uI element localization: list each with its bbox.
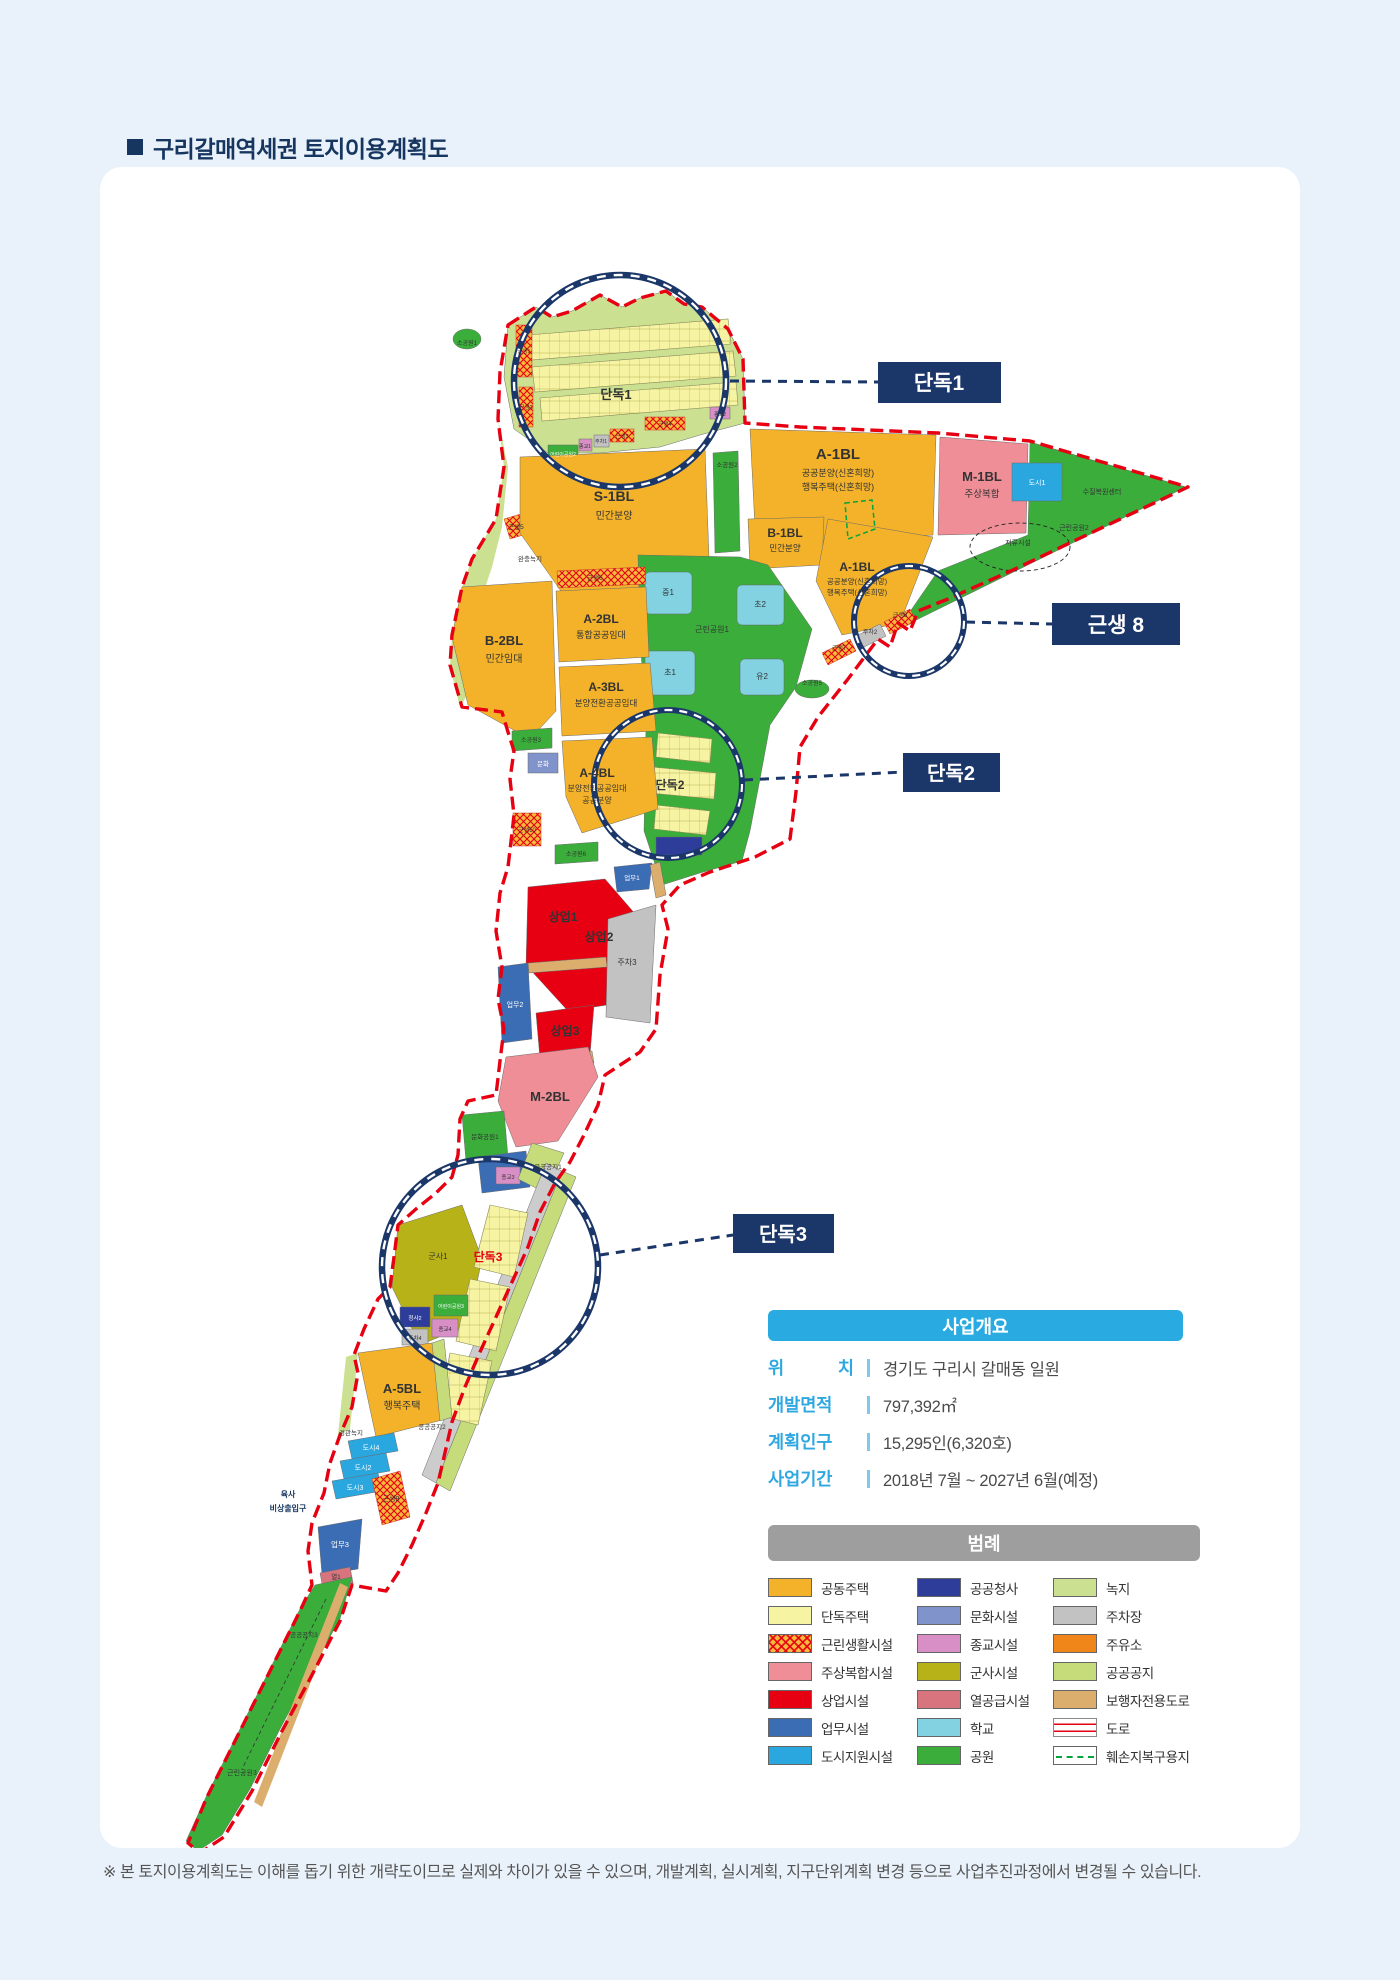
overview-row-label: 계획인구 <box>768 1429 854 1454</box>
overview-row: 위 치 경기도 구리시 갈매동 일원 <box>768 1355 1183 1380</box>
map-label: 분양전환공공임대 <box>568 783 627 793</box>
legend-swatch-solid <box>1053 1662 1097 1681</box>
map-label: S-1BL <box>594 488 635 504</box>
map-label: 업무1 <box>624 874 640 882</box>
map-label: 근린공원2 <box>1059 523 1089 532</box>
map-label: 업무2 <box>507 1001 524 1009</box>
legend-label: 공공공지 <box>1106 1662 1154 1682</box>
title-bullet-icon <box>127 139 143 155</box>
map-label: 저류시설 <box>1005 538 1031 547</box>
legend-item: 보행자전용도로 <box>1053 1690 1200 1709</box>
map-label: 상업2 <box>585 929 614 944</box>
overview-row-value: 15,295인(6,320호) <box>883 1430 1012 1454</box>
map-label: B-1BL <box>767 526 802 540</box>
overview-row: 개발면적 797,392㎡ <box>768 1392 1183 1417</box>
map-label: A-2BL <box>583 612 618 626</box>
map-label: 근생3 <box>615 432 628 440</box>
callout-line-dandok2 <box>744 772 903 780</box>
map-label: 근생7 <box>832 644 847 652</box>
legend-label: 도로 <box>1106 1718 1130 1738</box>
overview-row-value: 2018년 7월 ~ 2027년 6월(예정) <box>883 1467 1098 1491</box>
map-label: A-4BL <box>579 766 614 780</box>
legend-label: 주유소 <box>1106 1634 1142 1654</box>
map-label: 상업1 <box>549 909 578 924</box>
legend-item: 문화시설 <box>917 1606 1053 1625</box>
map-label: 비상출입구 <box>270 1503 307 1513</box>
legend-item: 공동주택 <box>768 1578 917 1597</box>
legend-label: 업무시설 <box>821 1718 869 1738</box>
legend-column: 공동주택단독주택근린생활시설주상복합시설상업시설업무시설도시지원시설 <box>768 1578 917 1765</box>
map-label: 공공공지2 <box>418 1422 446 1431</box>
callout-line-geunsaeng8 <box>966 622 1052 624</box>
legend-swatch-solid <box>917 1578 961 1597</box>
legend-item: 업무시설 <box>768 1718 917 1737</box>
map-label: 주차1 <box>595 438 607 445</box>
legend-swatch-solid <box>768 1578 812 1597</box>
legend-label: 주차장 <box>1106 1606 1142 1626</box>
map-label: 민간임대 <box>486 652 523 665</box>
map-label: 유2 <box>756 672 768 681</box>
overview-row-label: 개발면적 <box>768 1392 854 1417</box>
callout-label: 단독3 <box>759 1223 807 1246</box>
map-label: 주상복합 <box>965 489 1000 500</box>
legend-panel: 범례 공동주택단독주택근린생활시설주상복합시설상업시설업무시설도시지원시설공공청… <box>768 1525 1200 1765</box>
legend-item: 공원 <box>917 1746 1053 1765</box>
map-label: M-2BL <box>530 1089 570 1104</box>
legend-swatch-solid <box>917 1718 961 1737</box>
legend-swatch-restore <box>1053 1746 1097 1765</box>
map-label: 문화공원1 <box>471 1132 499 1141</box>
legend-label: 녹지 <box>1106 1578 1130 1598</box>
map-label: 소공원5 <box>802 679 823 687</box>
map-label: 청사2 <box>408 1314 421 1322</box>
legend-swatch-solid <box>768 1718 812 1737</box>
project-overview-panel: 사업개요 위 치 경기도 구리시 갈매동 일원 개발면적 797,392㎡ 계획… <box>768 1310 1183 1491</box>
legend-swatch-solid <box>917 1690 961 1709</box>
legend-swatch-solid <box>768 1690 812 1709</box>
map-label: 근생1 <box>517 347 530 355</box>
legend-swatch-solid <box>1053 1634 1097 1653</box>
map-label: 주차3 <box>617 958 637 967</box>
map-label: 초2 <box>754 600 766 609</box>
legend-label: 훼손지복구용지 <box>1106 1746 1189 1766</box>
legend-swatch-hatch <box>768 1634 812 1653</box>
map-label: 공공분양(신혼희망) <box>827 576 888 586</box>
overview-row-value: 경기도 구리시 갈매동 일원 <box>883 1356 1060 1380</box>
map-label: 완충녹지 <box>518 554 542 563</box>
map-label: 주차2 <box>863 628 878 636</box>
map-label: 분양전환공공임대 <box>575 698 638 708</box>
legend-item: 군사시설 <box>917 1662 1053 1681</box>
legend-swatch-solid <box>768 1662 812 1681</box>
map-label: 단독2 <box>656 777 685 792</box>
overview-header: 사업개요 <box>768 1310 1183 1341</box>
map-label: 소공원2 <box>716 460 738 469</box>
map-label: 공공공지3 <box>290 1630 318 1639</box>
overview-row: 사업기간 2018년 7월 ~ 2027년 6월(예정) <box>768 1466 1183 1491</box>
map-label: 공공분양(신혼희망) <box>802 467 874 478</box>
legend-swatch-solid <box>1053 1690 1097 1709</box>
legend-swatch-solid <box>768 1606 812 1625</box>
legend-item: 주유소 <box>1053 1634 1200 1653</box>
map-label: 단독3 <box>474 1249 503 1264</box>
legend-label: 상업시설 <box>821 1690 869 1710</box>
overview-row-divider <box>867 1470 870 1488</box>
legend-item: 종교시설 <box>917 1634 1053 1653</box>
legend-column: 녹지주차장주유소공공공지보행자전용도로도로훼손지복구용지 <box>1053 1578 1200 1765</box>
legend-grid: 공동주택단독주택근린생활시설주상복합시설상업시설업무시설도시지원시설공공청사문화… <box>768 1578 1200 1765</box>
map-label: 민간분양 <box>596 510 633 522</box>
legend-label: 보행자전용도로 <box>1106 1690 1189 1710</box>
map-label: 근생2 <box>519 403 532 411</box>
legend-swatch-solid <box>917 1606 961 1625</box>
map-label: 공공분양 <box>582 796 612 805</box>
map-label: 근생5 <box>508 522 524 531</box>
overview-row-value: 797,392㎡ <box>883 1393 957 1417</box>
map-label: 근생8 <box>893 611 908 619</box>
legend-item: 단독주택 <box>768 1606 917 1625</box>
map-label: 초1 <box>664 668 676 677</box>
legend-item: 상업시설 <box>768 1690 917 1709</box>
map-label: A-3BL <box>588 680 623 694</box>
legend-swatch-solid <box>917 1662 961 1681</box>
legend-item: 도시지원시설 <box>768 1746 917 1765</box>
map-label: 행복주택(신혼희망) <box>802 481 874 492</box>
map-label: 상업3 <box>551 1023 580 1038</box>
map-label: 주차4 <box>408 1334 421 1342</box>
map-label: 육사 <box>281 1489 296 1499</box>
legend-swatch-solid <box>1053 1578 1097 1597</box>
map-label: 행복주택(신혼희망) <box>827 587 888 597</box>
legend-label: 학교 <box>970 1718 994 1738</box>
legend-item: 주차장 <box>1053 1606 1200 1625</box>
map-label: 공공공지1 <box>534 1162 562 1171</box>
legend-item: 녹지 <box>1053 1578 1200 1597</box>
legend-label: 종교시설 <box>970 1634 1018 1654</box>
map-label: 업무3 <box>331 1540 349 1549</box>
map-label: 종교3 <box>501 1174 514 1181</box>
legend-label: 열공급시설 <box>970 1690 1030 1710</box>
map-label: A-1BL <box>839 560 874 574</box>
map-label: 민간분양 <box>769 543 800 553</box>
map-label: 단독1 <box>600 387 631 402</box>
overview-row-label: 위 치 <box>768 1355 854 1380</box>
map-label: 소공원3 <box>521 736 542 744</box>
legend-item: 열공급시설 <box>917 1690 1053 1709</box>
legend-label: 근린생활시설 <box>821 1634 893 1654</box>
callout-label: 단독2 <box>927 762 975 785</box>
overview-row-divider <box>867 1396 870 1414</box>
map-label: 도시2 <box>355 1464 372 1472</box>
map-label: 근생9 <box>383 1494 400 1503</box>
map-label: 통합공공임대 <box>576 629 626 640</box>
legend-swatch-solid <box>917 1746 961 1765</box>
legend-label: 도시지원시설 <box>821 1746 893 1766</box>
overview-rows: 위 치 경기도 구리시 갈매동 일원 개발면적 797,392㎡ 계획인구 15… <box>768 1355 1183 1491</box>
zone-geunsaeng7 <box>822 639 856 665</box>
page-title-text: 구리갈매역세권 토지이용계획도 <box>153 130 448 164</box>
map-label: 수질복원센터 <box>1083 487 1122 496</box>
overview-row-divider <box>867 1433 870 1451</box>
legend-header: 범례 <box>768 1525 1200 1561</box>
legend-swatch-road <box>1053 1718 1097 1737</box>
map-label: 근생6 <box>587 573 603 582</box>
legend-swatch-solid <box>917 1634 961 1653</box>
map-label: 근린공원3 <box>227 1768 257 1777</box>
map-label: B-2BL <box>485 633 523 648</box>
legend-item: 근린생활시설 <box>768 1634 917 1653</box>
map-label: 어린이공원3 <box>438 1303 464 1310</box>
callout-line-dandok1 <box>730 381 878 382</box>
map-card: 단독1 근생 8 단독2 단독3 소공원1근생1근생2어린이공원2종교1주차1근… <box>100 167 1300 1848</box>
map-label: 근린공원1 <box>695 624 729 634</box>
page: { "page": { "title": "구리갈매역세권 토지이용계획도", … <box>0 0 1400 1980</box>
map-label: A-5BL <box>383 1381 421 1396</box>
overview-row-divider <box>867 1359 870 1377</box>
legend-label: 공원 <box>970 1746 994 1766</box>
callout-label: 단독1 <box>914 372 965 395</box>
legend-label: 공동주택 <box>821 1578 869 1598</box>
map-label: 열1 <box>331 1573 341 1581</box>
legend-swatch-solid <box>1053 1606 1097 1625</box>
map-label: 도시1 <box>1029 479 1046 487</box>
map-label: 소공원1 <box>457 339 478 347</box>
legend-swatch-solid <box>768 1746 812 1765</box>
map-label: 어린이공원2 <box>550 451 576 458</box>
legend-item: 주상복합시설 <box>768 1662 917 1681</box>
overview-row: 계획인구 15,295인(6,320호) <box>768 1429 1183 1454</box>
legend-item: 공공공지 <box>1053 1662 1200 1681</box>
map-label: 도시3 <box>347 1484 364 1492</box>
map-label: 근생4 <box>658 420 671 428</box>
map-label: 종교4 <box>438 1326 451 1333</box>
map-label: 종교2 <box>714 412 726 418</box>
map-label: 근생10 <box>518 826 536 834</box>
map-label: 군사1 <box>428 1252 448 1261</box>
legend-item: 공공청사 <box>917 1578 1053 1597</box>
page-title: 구리갈매역세권 토지이용계획도 <box>127 130 448 164</box>
legend-label: 공공청사 <box>970 1578 1018 1598</box>
legend-column: 공공청사문화시설종교시설군사시설열공급시설학교공원 <box>917 1578 1053 1765</box>
legend-item: 도로 <box>1053 1718 1200 1737</box>
map-label: A-1BL <box>816 446 860 463</box>
map-label: 종교1 <box>579 444 591 450</box>
legend-label: 군사시설 <box>970 1662 1018 1682</box>
legend-label: 단독주택 <box>821 1606 869 1626</box>
map-label: 문화 <box>537 760 549 768</box>
map-label: M-1BL <box>962 469 1002 484</box>
map-label: 행복주택 <box>384 1400 421 1412</box>
legend-label: 주상복합시설 <box>821 1662 893 1682</box>
map-label: 소공원6 <box>566 850 587 858</box>
map-label: 경관녹지 <box>339 1428 363 1437</box>
map-label: 도시4 <box>363 1444 380 1452</box>
callout-label: 근생 8 <box>1088 614 1144 637</box>
callout-line-dandok3 <box>600 1235 733 1255</box>
map-label: 중1 <box>662 588 674 597</box>
legend-item: 학교 <box>917 1718 1053 1737</box>
legend-item: 훼손지복구용지 <box>1053 1746 1200 1765</box>
overview-row-label: 사업기간 <box>768 1466 854 1491</box>
footnote: ※ 본 토지이용계획도는 이해를 돕기 위한 개략도이므로 실제와 차이가 있을… <box>103 1858 1383 1882</box>
legend-label: 문화시설 <box>970 1606 1018 1626</box>
